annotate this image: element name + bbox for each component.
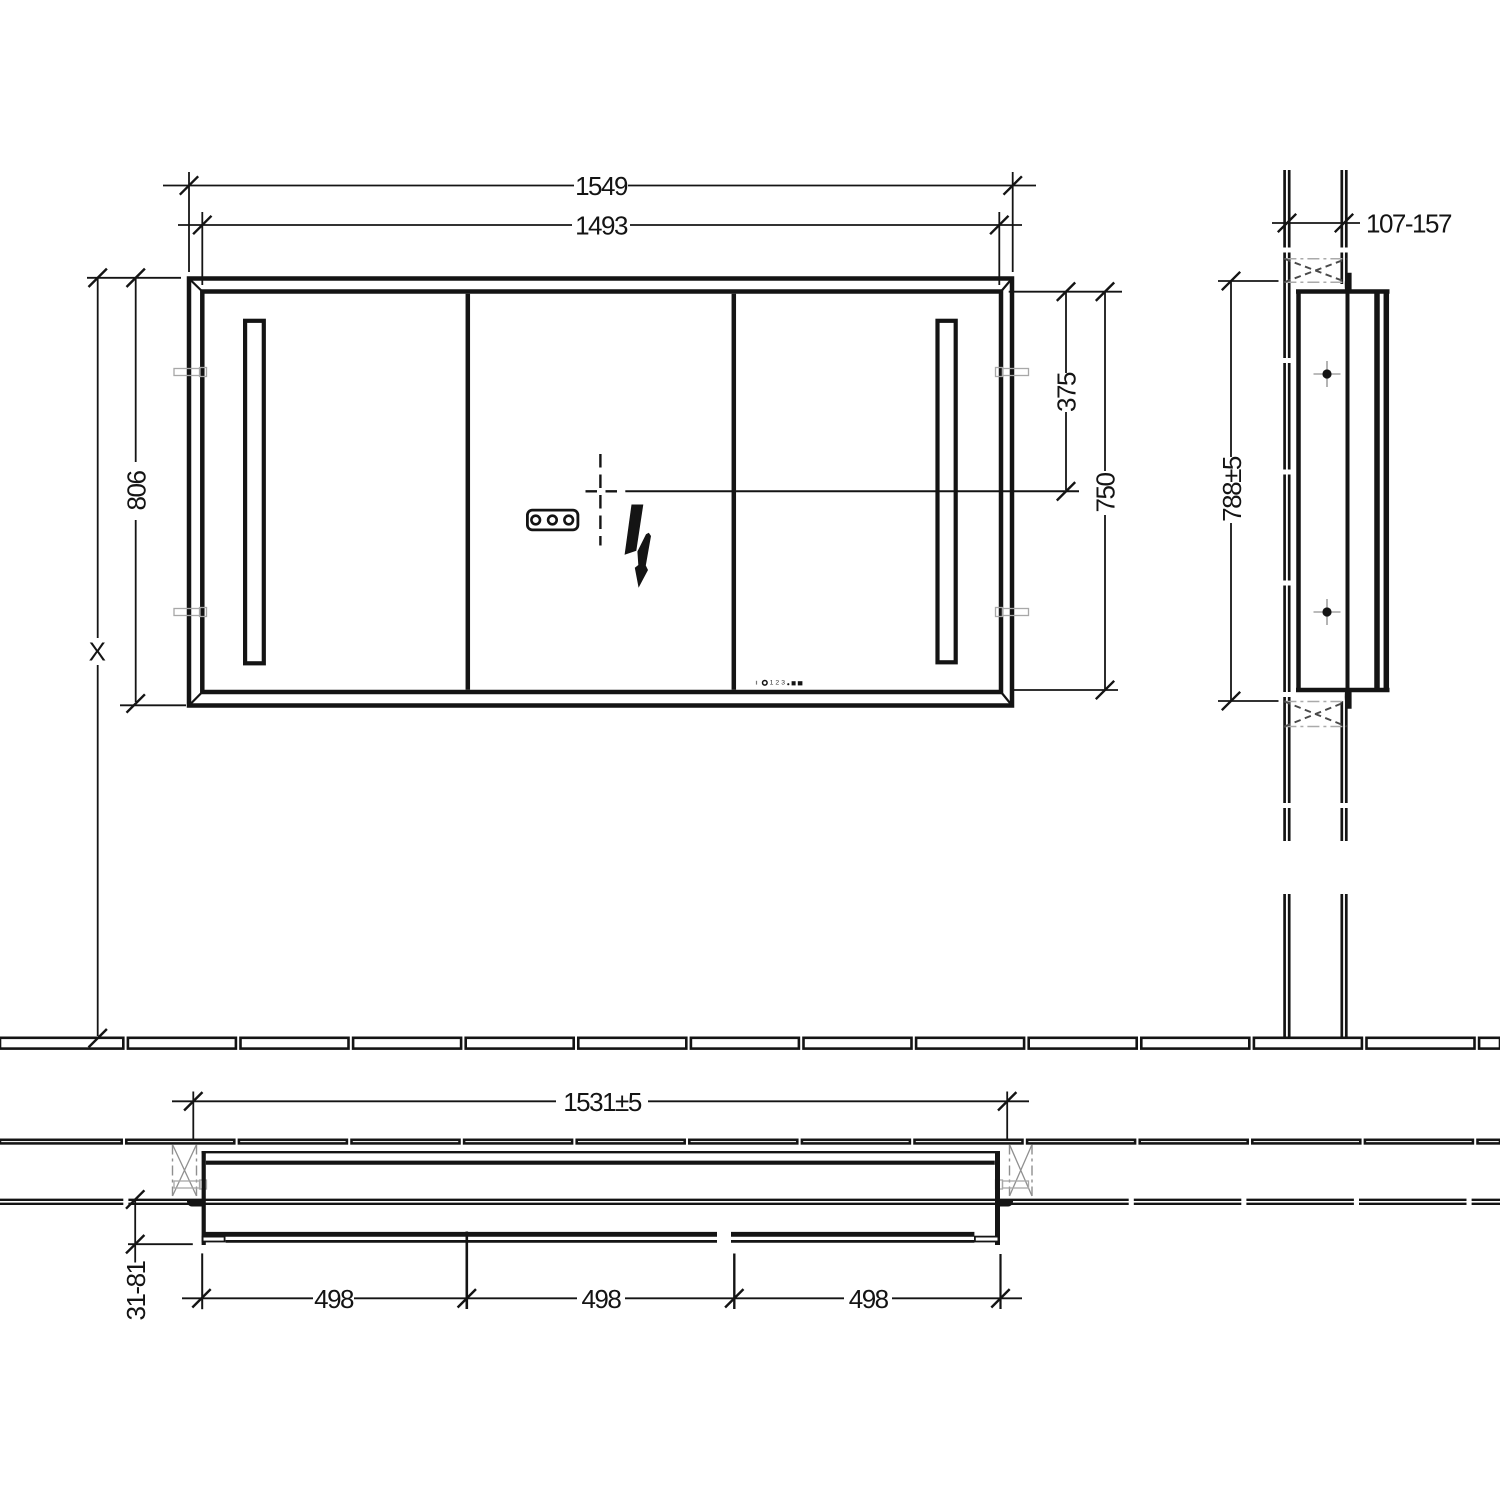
svg-text:806: 806 bbox=[122, 471, 152, 511]
svg-text:1549: 1549 bbox=[575, 171, 628, 201]
svg-text:375: 375 bbox=[1052, 372, 1082, 412]
svg-text:1531±5: 1531±5 bbox=[563, 1087, 642, 1117]
svg-text:1493: 1493 bbox=[575, 211, 628, 241]
svg-text:750: 750 bbox=[1091, 473, 1121, 513]
svg-text:107-157: 107-157 bbox=[1366, 209, 1452, 239]
svg-text:2: 2 bbox=[775, 680, 779, 687]
svg-text:31-81: 31-81 bbox=[121, 1260, 151, 1320]
svg-text:788±5: 788±5 bbox=[1217, 456, 1247, 522]
svg-text:498: 498 bbox=[581, 1284, 621, 1314]
svg-text:X: X bbox=[89, 637, 106, 667]
svg-text:1: 1 bbox=[770, 680, 774, 687]
svg-text:498: 498 bbox=[314, 1284, 354, 1314]
svg-text:498: 498 bbox=[849, 1284, 889, 1314]
svg-text:3: 3 bbox=[781, 680, 785, 687]
